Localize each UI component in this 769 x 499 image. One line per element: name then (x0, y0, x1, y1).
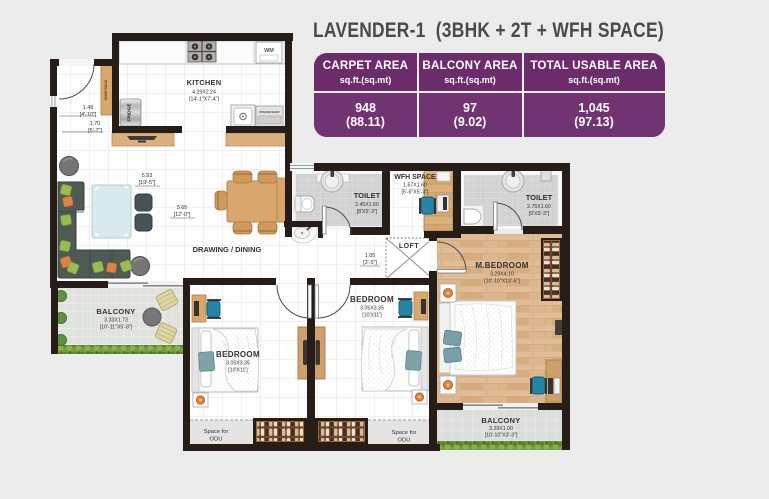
svg-text:[14'-1"X7'-4"]: [14'-1"X7'-4"] (189, 97, 219, 103)
svg-text:LOFT: LOFT (399, 243, 419, 250)
svg-text:[10'X11']: [10'X11'] (228, 368, 248, 374)
svg-text:Space for: Space for (204, 429, 229, 435)
svg-text:[5'-7"]: [5'-7"] (88, 128, 102, 134)
svg-text:FRIDGE: FRIDGE (127, 103, 133, 122)
svg-text:BALCONY: BALCONY (96, 307, 135, 316)
svg-text:Space for: Space for (392, 430, 417, 436)
svg-text:ODU: ODU (210, 437, 223, 443)
svg-text:1.67X1.60: 1.67X1.60 (403, 183, 427, 189)
svg-text:[10'-10"X3'-3"]: [10'-10"X3'-3"] (485, 433, 518, 439)
svg-text:1.05: 1.05 (365, 253, 376, 259)
svg-text:ODU: ODU (398, 438, 411, 444)
svg-text:WFH SPACE: WFH SPACE (394, 174, 436, 181)
svg-text:5.93: 5.93 (142, 173, 153, 179)
svg-text:BEDROOM: BEDROOM (216, 350, 260, 359)
svg-text:3.65: 3.65 (177, 205, 188, 211)
svg-text:3.29X4.10: 3.29X4.10 (490, 272, 514, 278)
svg-text:DRAWING / DINING: DRAWING / DINING (193, 245, 262, 254)
svg-text:TOILET: TOILET (354, 191, 381, 200)
svg-text:KITCHEN: KITCHEN (187, 78, 222, 87)
svg-text:BALCONY: BALCONY (481, 416, 520, 425)
svg-text:3.05X3.35: 3.05X3.35 (360, 306, 384, 312)
svg-text:DISHWASHER: DISHWASHER (259, 110, 280, 114)
svg-text:[10'X11']: [10'X11'] (362, 313, 382, 319)
svg-text:1.48: 1.48 (83, 105, 94, 111)
svg-text:SHOE RACK: SHOE RACK (104, 79, 108, 100)
svg-text:TOILET: TOILET (526, 193, 553, 202)
svg-text:[12'-0"]: [12'-0"] (174, 212, 191, 218)
svg-text:[3'-5"]: [3'-5"] (363, 260, 377, 266)
svg-text:4.29X2.24: 4.29X2.24 (192, 90, 216, 96)
svg-text:M.BEDROOM: M.BEDROOM (475, 261, 528, 270)
svg-text:[5'-6"X5'-3"]: [5'-6"X5'-3"] (401, 190, 429, 196)
svg-text:[9'X5'-3"]: [9'X5'-3"] (529, 211, 550, 217)
svg-text:[19'-5"]: [19'-5"] (139, 180, 156, 186)
svg-text:WM: WM (264, 48, 274, 54)
svg-text:BEDROOM: BEDROOM (350, 295, 394, 304)
svg-text:3.33X1.73: 3.33X1.73 (104, 318, 128, 324)
svg-text:[10'-10"X13'-5"]: [10'-10"X13'-5"] (484, 279, 520, 285)
svg-text:3.05X3.35: 3.05X3.35 (226, 361, 250, 367)
svg-text:2.45X1.60: 2.45X1.60 (355, 202, 379, 208)
svg-text:2.75X1.60: 2.75X1.60 (527, 204, 551, 210)
svg-text:3.29X1.00: 3.29X1.00 (489, 426, 513, 432)
svg-text:[10'-11"X5'-8"]: [10'-11"X5'-8"] (100, 325, 133, 331)
svg-text:1.70: 1.70 (90, 121, 101, 127)
svg-text:[4'-10"]: [4'-10"] (80, 112, 97, 118)
svg-text:[8'X5'-3"]: [8'X5'-3"] (357, 209, 378, 215)
